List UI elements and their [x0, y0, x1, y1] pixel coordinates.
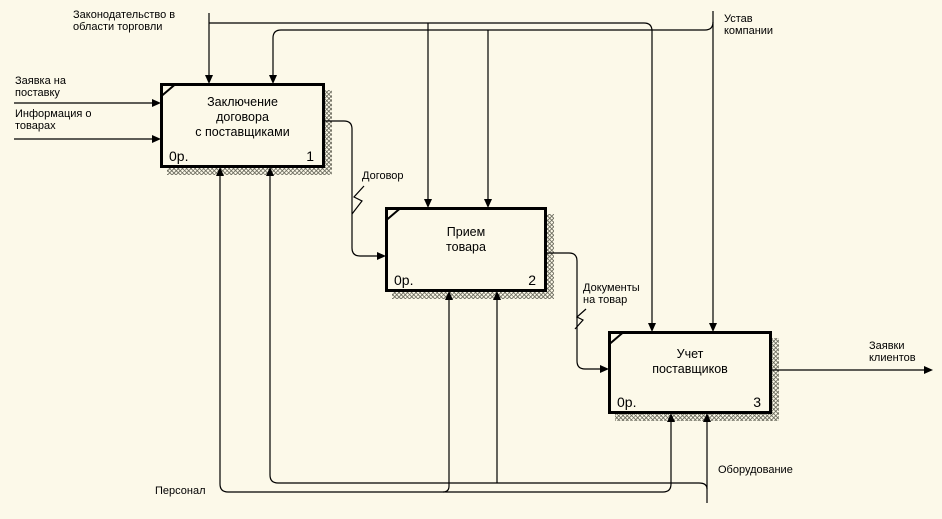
arrowhead-up-icon	[216, 167, 224, 176]
arrowhead-right-icon	[152, 99, 161, 107]
label-goods-documents[interactable]: Документы на товар	[583, 282, 640, 306]
label-line: клиентов	[869, 352, 916, 364]
arrow-segment[interactable]	[209, 23, 652, 323]
label-personnel[interactable]: Персонал	[155, 485, 206, 497]
mechanism-arrow-equipment[interactable]	[266, 167, 711, 503]
label-supply-request[interactable]: Заявка на поставку	[15, 75, 66, 99]
arrow-segment[interactable]	[270, 176, 707, 489]
mechanism-arrow-personnel[interactable]	[216, 167, 675, 492]
arrowhead-right-icon	[924, 366, 933, 374]
arrowhead-down-icon	[648, 323, 656, 332]
label-line: компании	[724, 25, 773, 37]
input-arrow-product-info[interactable]	[14, 135, 161, 143]
arrowhead-right-icon	[600, 365, 609, 373]
arrowhead-down-icon	[424, 199, 432, 208]
arrowhead-up-icon	[703, 413, 711, 422]
label-line: Договор	[362, 170, 404, 182]
label-line: Документы	[583, 282, 640, 294]
arrowhead-down-icon	[205, 75, 213, 84]
arrowhead-right-icon	[377, 252, 386, 260]
arrowhead-down-icon	[709, 323, 717, 332]
label-charter[interactable]: Устав компании	[724, 13, 773, 37]
label-line: Информация о	[15, 108, 92, 120]
arrowhead-up-icon	[667, 413, 675, 422]
arrowhead-up-icon	[493, 291, 501, 300]
arrow-segment[interactable]	[273, 22, 713, 75]
label-line: Заявка на	[15, 75, 66, 87]
idef0-diagram-canvas: Заключение договора с поставщиками 0р. 1…	[0, 0, 942, 519]
input-arrow-supply-request[interactable]	[14, 99, 161, 107]
box-corner-mark-icon	[162, 85, 176, 97]
label-legislation[interactable]: Законодательство в области торговли	[73, 9, 175, 33]
arrow-segment[interactable]	[443, 300, 449, 492]
label-line: Законодательство в	[73, 9, 175, 21]
arrowhead-down-icon	[484, 199, 492, 208]
arrowhead-up-icon	[266, 167, 274, 176]
label-line: на товар	[583, 294, 640, 306]
arrow-segment[interactable]	[220, 176, 671, 492]
label-squiggle	[352, 186, 364, 214]
arrow-segment[interactable]	[547, 253, 600, 369]
label-line: Оборудование	[718, 464, 793, 476]
label-line: Персонал	[155, 485, 206, 497]
label-contract[interactable]: Договор	[362, 170, 404, 182]
arrow-layer	[0, 0, 942, 519]
label-product-info[interactable]: Информация о товарах	[15, 108, 92, 132]
label-line: товарах	[15, 120, 92, 132]
arrowhead-right-icon	[152, 135, 161, 143]
arrowhead-down-icon	[269, 75, 277, 84]
flow-arrow-contract[interactable]	[325, 121, 386, 260]
arrow-segment[interactable]	[325, 121, 377, 256]
label-equipment[interactable]: Оборудование	[718, 464, 793, 476]
box-corner-mark-icon	[610, 333, 624, 345]
output-arrow-client-requests[interactable]	[772, 366, 933, 374]
label-line: поставку	[15, 87, 66, 99]
label-line: области торговли	[73, 21, 175, 33]
box-corner-mark-icon	[387, 209, 401, 221]
arrowhead-up-icon	[445, 291, 453, 300]
label-line: Заявки	[869, 340, 916, 352]
label-client-requests[interactable]: Заявки клиентов	[869, 340, 916, 364]
flow-arrow-goods-documents[interactable]	[547, 253, 609, 373]
control-arrow-charter[interactable]	[269, 11, 717, 332]
label-line: Устав	[724, 13, 773, 25]
